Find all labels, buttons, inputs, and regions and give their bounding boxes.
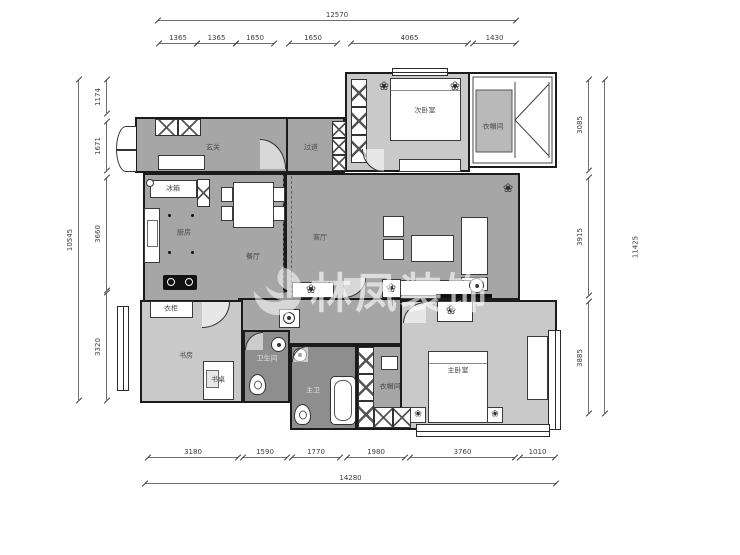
lamp-icon bbox=[146, 179, 154, 187]
coffee-table-icon bbox=[411, 235, 454, 262]
dresser-icon bbox=[381, 356, 398, 370]
dim-bottom-segment: 1010 bbox=[520, 447, 555, 458]
dim-top-segment: 1430 bbox=[473, 33, 516, 44]
dim-left-segment: 3660 bbox=[106, 178, 117, 290]
dining-table-icon bbox=[233, 182, 274, 228]
room-label-passage: 过道 bbox=[304, 145, 318, 152]
area-divider-dashed bbox=[291, 176, 292, 298]
plant-icon: ❀ bbox=[446, 304, 456, 316]
island-post-icon bbox=[168, 214, 171, 217]
dim-right-segment: 3915 bbox=[588, 178, 599, 295]
dim-top-overall: 12570 bbox=[158, 10, 516, 21]
armchair-icon bbox=[383, 216, 404, 237]
room-label-entry: 玄关 bbox=[206, 145, 220, 152]
bay-window-icon bbox=[416, 424, 550, 437]
chair-icon bbox=[221, 187, 233, 202]
tv-icon bbox=[436, 294, 492, 298]
dim-right-segment: 3085 bbox=[588, 80, 599, 170]
toilet-icon bbox=[249, 374, 266, 395]
wardrobe-hatch-icon bbox=[393, 407, 411, 428]
dim-bottom-segment: 1980 bbox=[347, 447, 405, 458]
kitchen-sink-icon bbox=[147, 220, 158, 247]
room-label-living: 客厅 bbox=[313, 235, 327, 242]
dim-bottom-overall: 14280 bbox=[145, 473, 556, 484]
wardrobe-hatch-icon bbox=[374, 407, 393, 428]
furniture-label-wardrobe: 衣柜 bbox=[164, 306, 178, 313]
dim-left-segment: 1174 bbox=[106, 80, 117, 113]
washbasin-icon bbox=[283, 312, 295, 324]
plant-icon: ❀ bbox=[491, 411, 499, 420]
room-label-cloakroom-master: 衣帽间 bbox=[380, 384, 401, 391]
dim-top-segment: 1650 bbox=[236, 33, 274, 44]
dim-bottom-segment: 3180 bbox=[148, 447, 238, 458]
speaker-icon bbox=[469, 278, 484, 293]
dim-bottom-segment: 1590 bbox=[243, 447, 287, 458]
stove-icon bbox=[163, 275, 197, 290]
bed-icon bbox=[428, 351, 488, 423]
plant-icon: ❀ bbox=[450, 80, 460, 92]
dim-right-segment: 3885 bbox=[588, 302, 599, 413]
island-post-icon bbox=[191, 251, 194, 254]
wardrobe-hatch-icon bbox=[351, 107, 367, 135]
dim-bottom-segment: 3760 bbox=[410, 447, 515, 458]
bench-cabinet bbox=[527, 336, 548, 400]
plant-icon: ❀ bbox=[386, 282, 396, 294]
window-icon bbox=[392, 68, 448, 76]
floor-plan-canvas: 12570 1365 1365 1650 1650 4065 1430 3180… bbox=[0, 0, 740, 555]
wardrobe-hatch-icon bbox=[358, 374, 374, 401]
room-label-dining: 餐厅 bbox=[246, 254, 260, 261]
sink-icon bbox=[271, 337, 286, 352]
furniture-label-desk: 书桌 bbox=[211, 377, 225, 384]
chair-icon bbox=[273, 187, 285, 202]
hall-cabinet-hatch-icon bbox=[332, 138, 346, 155]
chair-icon bbox=[221, 206, 233, 221]
sofa-icon bbox=[461, 217, 488, 275]
room-cloakroom-top bbox=[468, 72, 557, 168]
shoe-cabinet-hatch-icon bbox=[178, 119, 201, 136]
room-label-bath-guest: 卫生间 bbox=[257, 356, 278, 363]
room-label-bath-master: 主卫 bbox=[306, 388, 320, 395]
dim-left-segment: 3320 bbox=[106, 293, 117, 400]
hall-cabinet-hatch-icon bbox=[332, 121, 346, 138]
room-label-kitchen: 厨房 bbox=[177, 230, 191, 237]
island-post-icon bbox=[191, 214, 194, 217]
wardrobe-hatch-icon bbox=[358, 347, 374, 374]
dim-right-overall: 11425 bbox=[604, 80, 615, 413]
dim-bottom-segment: 1770 bbox=[292, 447, 340, 458]
entry-bench bbox=[158, 155, 205, 170]
dim-top-segment: 1365 bbox=[159, 33, 197, 44]
bedroom2-bench bbox=[399, 159, 461, 172]
closet-hatch-icon bbox=[470, 74, 555, 166]
shoe-cabinet-hatch-icon bbox=[155, 119, 178, 136]
dim-top-segment: 4065 bbox=[351, 33, 468, 44]
room-label-master-bedroom: 主卧室 bbox=[448, 368, 469, 375]
entry-door-bay bbox=[116, 126, 136, 172]
dim-top-segment: 1650 bbox=[289, 33, 337, 44]
hall-cabinet-hatch-icon bbox=[332, 155, 346, 171]
dim-top-segment: 1365 bbox=[197, 33, 236, 44]
window-icon bbox=[117, 306, 129, 391]
dim-left-overall: 10545 bbox=[78, 80, 89, 400]
plant-icon: ❀ bbox=[379, 80, 389, 92]
wardrobe-hatch-icon bbox=[351, 79, 367, 107]
room-label-bedroom2: 次卧室 bbox=[415, 108, 436, 115]
bay-window-icon bbox=[548, 330, 561, 430]
room-label-cloakroom-top: 衣帽间 bbox=[483, 124, 504, 131]
plant-icon: ❀ bbox=[306, 283, 316, 295]
chair-icon bbox=[273, 206, 285, 221]
bathtub-icon bbox=[330, 376, 356, 425]
furniture-label-fridge: 冰箱 bbox=[166, 186, 180, 193]
kitchen-cabinet-hatch-icon bbox=[197, 179, 210, 207]
armchair-icon bbox=[383, 239, 404, 260]
plant-icon: ❀ bbox=[414, 411, 422, 420]
wardrobe-hatch-icon bbox=[358, 401, 374, 428]
island-post-icon bbox=[168, 251, 171, 254]
room-label-study: 书房 bbox=[179, 353, 193, 360]
plant-icon: ❀ bbox=[503, 182, 513, 194]
toilet-icon bbox=[294, 404, 311, 425]
